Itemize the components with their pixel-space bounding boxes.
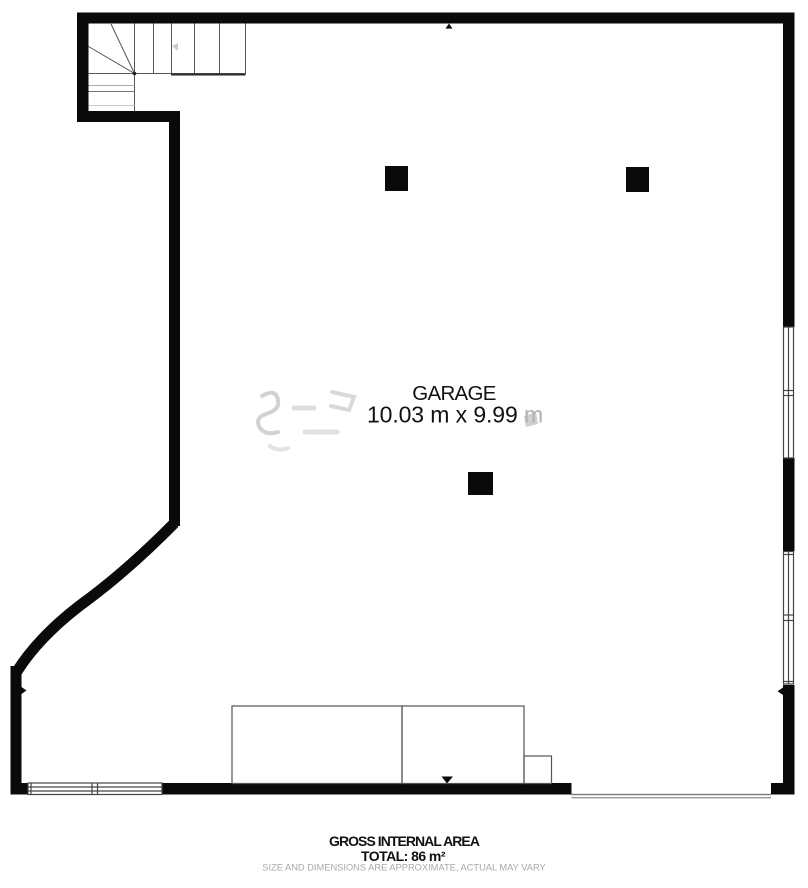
svg-text:SIZE AND DIMENSIONS ARE APPROX: SIZE AND DIMENSIONS ARE APPROXIMATE, ACT… xyxy=(262,863,545,873)
svg-text:GROSS INTERNAL AREA: GROSS INTERNAL AREA xyxy=(329,833,480,849)
svg-text:10.03 m x 9.99 m: 10.03 m x 9.99 m xyxy=(367,401,543,427)
